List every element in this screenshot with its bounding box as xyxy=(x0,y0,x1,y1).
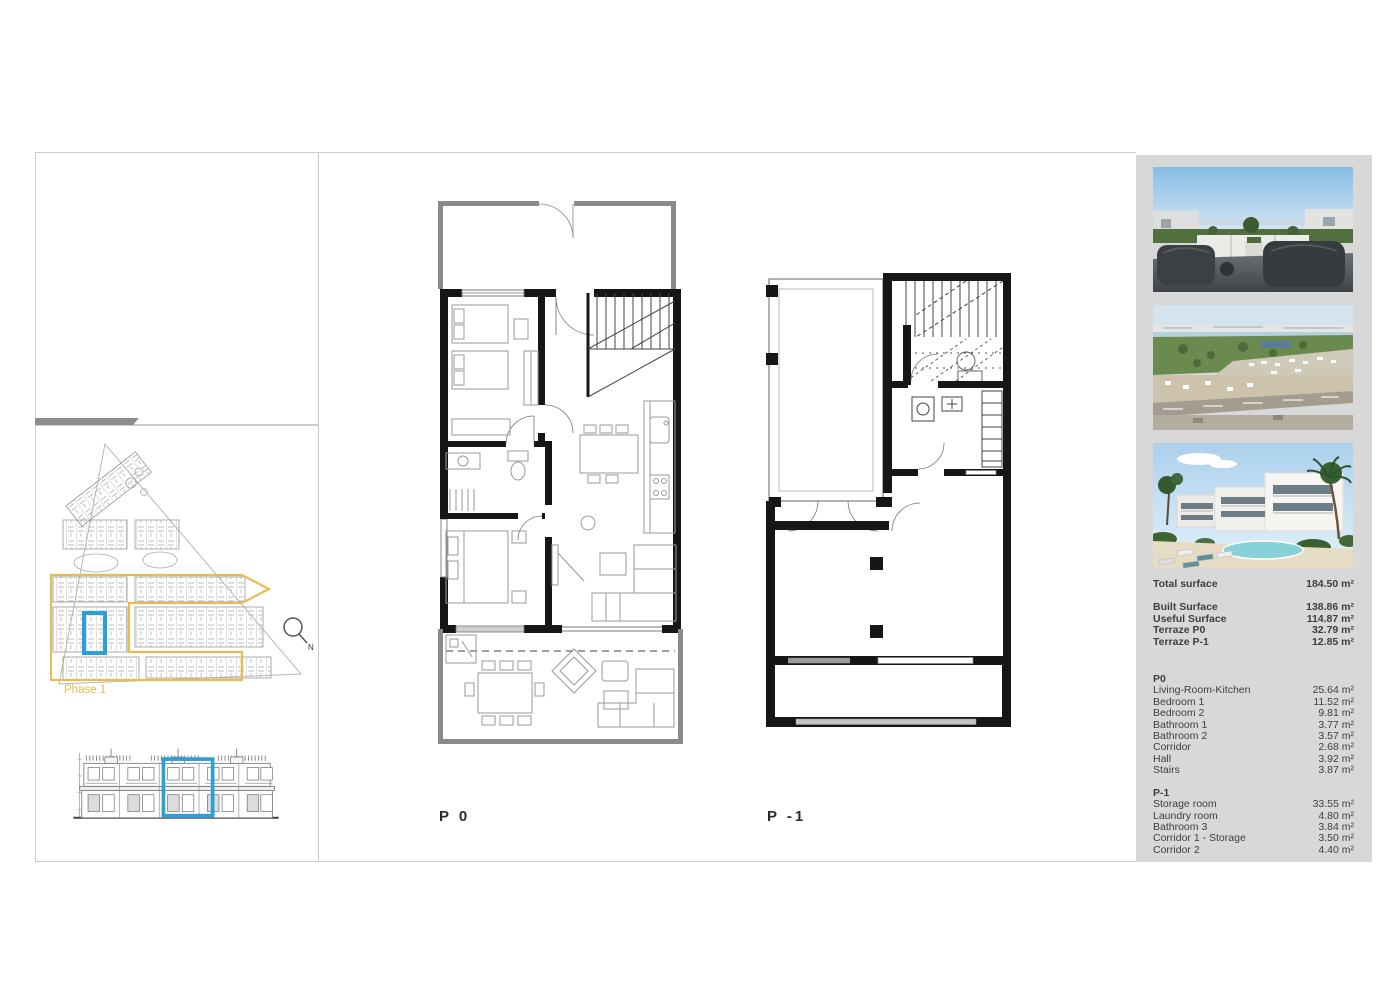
room-label: Corridor 1 - Storage xyxy=(1153,833,1246,844)
surface-table: Total surface 184.50 m² Built Surface 13… xyxy=(1153,579,1354,856)
floor-plan-p1 xyxy=(766,273,1011,731)
surface-value: 32.79 m² xyxy=(1312,625,1354,636)
compass-label: N xyxy=(308,643,314,652)
site-plan-panel: N Phase 1 xyxy=(35,425,319,862)
site-block-tilted xyxy=(66,452,151,527)
floor-plan-p0 xyxy=(438,201,683,746)
room-value: 9.81 m² xyxy=(1318,708,1354,719)
surface-label: Terraze P0 xyxy=(1153,625,1205,636)
elevation-drawing xyxy=(71,734,281,823)
p0-label: P 0 xyxy=(439,808,470,825)
photo-aerial-view xyxy=(1153,305,1353,430)
divider-bar xyxy=(35,418,139,425)
room-value: 3.50 m² xyxy=(1318,833,1354,844)
total-surface-label: Total surface xyxy=(1153,579,1218,590)
total-surface-row: Total surface 184.50 m² xyxy=(1153,579,1354,590)
compass-north-icon: N xyxy=(284,618,314,652)
room-row: Corridor 1 - Storage 3.50 m² xyxy=(1153,833,1354,844)
surface-label: Terraze P-1 xyxy=(1153,637,1209,648)
phase-label: Phase 1 xyxy=(64,684,106,696)
surface-row: Terraze P-1 12.85 m² xyxy=(1153,637,1354,648)
surface-value: 12.85 m² xyxy=(1312,637,1354,648)
sidebar: Total surface 184.50 m² Built Surface 13… xyxy=(1136,155,1372,862)
floor-plans-panel: P 0 P -1 xyxy=(318,152,1136,862)
room-label: Corridor 2 xyxy=(1153,845,1200,856)
room-value: 3.87 m² xyxy=(1318,765,1354,776)
empty-panel xyxy=(35,152,319,425)
surface-row: Terraze P0 32.79 m² xyxy=(1153,625,1354,636)
room-label: Storage room xyxy=(1153,799,1217,810)
room-value: 33.55 m² xyxy=(1313,799,1354,810)
room-row: Bedroom 2 9.81 m² xyxy=(1153,708,1354,719)
room-label: Stairs xyxy=(1153,765,1180,776)
room-row: Corridor 2 4.40 m² xyxy=(1153,845,1354,856)
brochure-page: N Phase 1 xyxy=(0,0,1400,990)
p1-label: P -1 xyxy=(767,808,806,825)
room-value: 4.40 m² xyxy=(1318,845,1354,856)
room-label: Bedroom 2 xyxy=(1153,708,1204,719)
photo-complex-pool-render xyxy=(1153,443,1353,568)
total-surface-value: 184.50 m² xyxy=(1306,579,1354,590)
room-row: Stairs 3.87 m² xyxy=(1153,765,1354,776)
site-plan-drawing: N Phase 1 xyxy=(36,426,318,726)
photo-terrace-render xyxy=(1153,167,1353,292)
room-row: Storage room 33.55 m² xyxy=(1153,799,1354,810)
